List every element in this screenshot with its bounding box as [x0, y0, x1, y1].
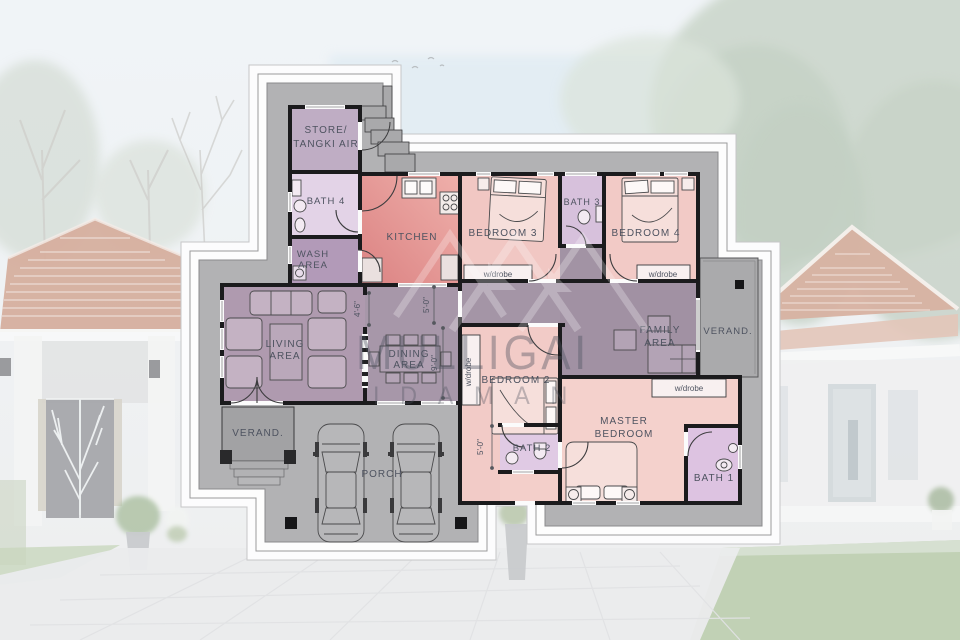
- svg-text:w/drobe: w/drobe: [674, 384, 704, 393]
- svg-text:5'-0": 5'-0": [476, 439, 485, 455]
- svg-text:VERAND.: VERAND.: [232, 428, 283, 439]
- svg-text:MASTER: MASTER: [600, 416, 648, 427]
- svg-text:AREA: AREA: [644, 338, 675, 349]
- svg-text:BATH 3: BATH 3: [564, 197, 601, 207]
- svg-text:BEDROOM: BEDROOM: [595, 429, 654, 440]
- svg-text:BATH 1: BATH 1: [694, 473, 734, 484]
- svg-text:PORCH: PORCH: [361, 469, 402, 480]
- svg-text:BEDROOM 4: BEDROOM 4: [611, 228, 680, 239]
- svg-text:IDAMAN: IDAMAN: [373, 382, 588, 410]
- svg-text:STORE/: STORE/: [304, 125, 347, 136]
- svg-text:MULLIGAI: MULLIGAI: [356, 327, 590, 380]
- svg-text:BATH 2: BATH 2: [513, 443, 552, 454]
- svg-text:AREA: AREA: [269, 351, 300, 362]
- svg-text:4'-6": 4'-6": [353, 301, 362, 317]
- svg-text:WASH: WASH: [297, 249, 329, 260]
- svg-text:KITCHEN: KITCHEN: [387, 232, 438, 243]
- svg-text:BEDROOM 3: BEDROOM 3: [468, 228, 537, 239]
- svg-text:w/drobe: w/drobe: [648, 270, 678, 279]
- svg-text:LIVING: LIVING: [266, 339, 305, 350]
- svg-text:TANGKI AIR: TANGKI AIR: [293, 139, 358, 150]
- svg-text:BATH 4: BATH 4: [307, 196, 346, 207]
- svg-text:VERAND.: VERAND.: [703, 326, 752, 337]
- svg-text:5'-0": 5'-0": [422, 297, 431, 313]
- svg-text:AREA: AREA: [298, 260, 328, 271]
